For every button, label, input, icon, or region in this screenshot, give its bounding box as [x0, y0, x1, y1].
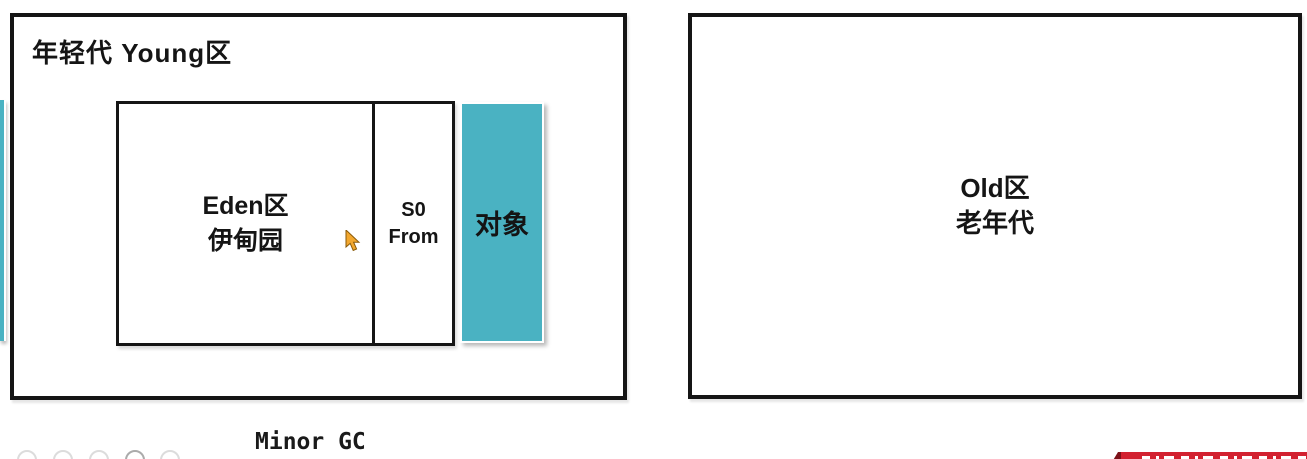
diagram-canvas: 年轻代 Young区 Eden区 伊甸园 S0 From 对象 Old区 老年代…	[0, 0, 1307, 459]
object-circle	[89, 450, 109, 459]
old-label-line1: Old区	[956, 171, 1034, 206]
old-generation-label: Old区 老年代	[956, 171, 1034, 241]
object-box-label: 对象	[475, 203, 529, 242]
young-generation-title: 年轻代 Young区	[32, 33, 232, 70]
object-circle	[125, 450, 145, 459]
eden-label-line1: Eden区	[202, 189, 288, 224]
object-circle	[17, 450, 37, 459]
object-circle	[53, 450, 73, 459]
old-label-line2: 老年代	[956, 206, 1034, 241]
survivor-s0-region: S0 From	[375, 104, 452, 343]
object-box-offscreen	[0, 100, 6, 341]
object-circle	[160, 450, 180, 459]
mouse-cursor-icon	[345, 230, 362, 252]
eden-label-line2: 伊甸园	[208, 224, 283, 259]
s0-label-line2: From	[389, 224, 439, 251]
minor-gc-label: Minor GC	[255, 429, 366, 455]
object-box: 对象	[460, 102, 544, 343]
s0-label-line1: S0	[401, 197, 425, 224]
eden-survivor-box: Eden区 伊甸园 S0 From	[116, 101, 455, 346]
old-generation-box: Old区 老年代	[688, 13, 1302, 399]
eden-region: Eden区 伊甸园	[119, 104, 375, 343]
red-ribbon-banner	[1104, 451, 1307, 459]
